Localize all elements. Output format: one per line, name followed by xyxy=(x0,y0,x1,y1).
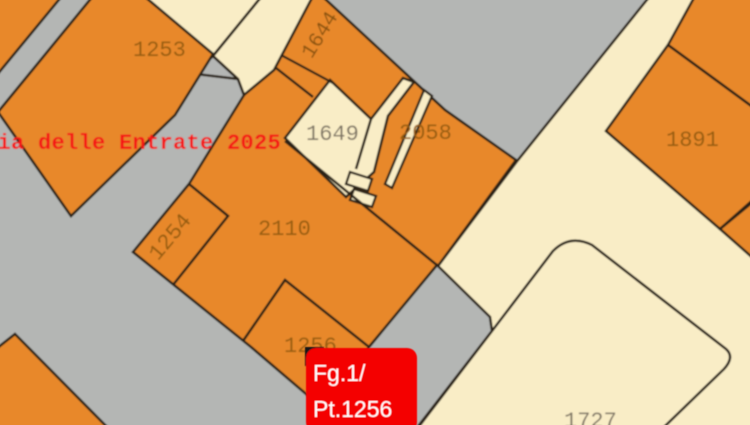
svg-text:2110: 2110 xyxy=(258,217,311,242)
svg-text:1649: 1649 xyxy=(306,122,359,147)
svg-text:Pt.1256: Pt.1256 xyxy=(313,396,392,422)
svg-text:1891: 1891 xyxy=(666,128,719,153)
svg-text:1727: 1727 xyxy=(564,409,617,425)
svg-text:Agenzia delle Entrate 2025: Agenzia delle Entrate 2025 xyxy=(0,131,281,156)
svg-text:1253: 1253 xyxy=(133,38,186,63)
svg-text:Fg.1/: Fg.1/ xyxy=(313,360,366,386)
svg-text:2058: 2058 xyxy=(399,121,452,146)
